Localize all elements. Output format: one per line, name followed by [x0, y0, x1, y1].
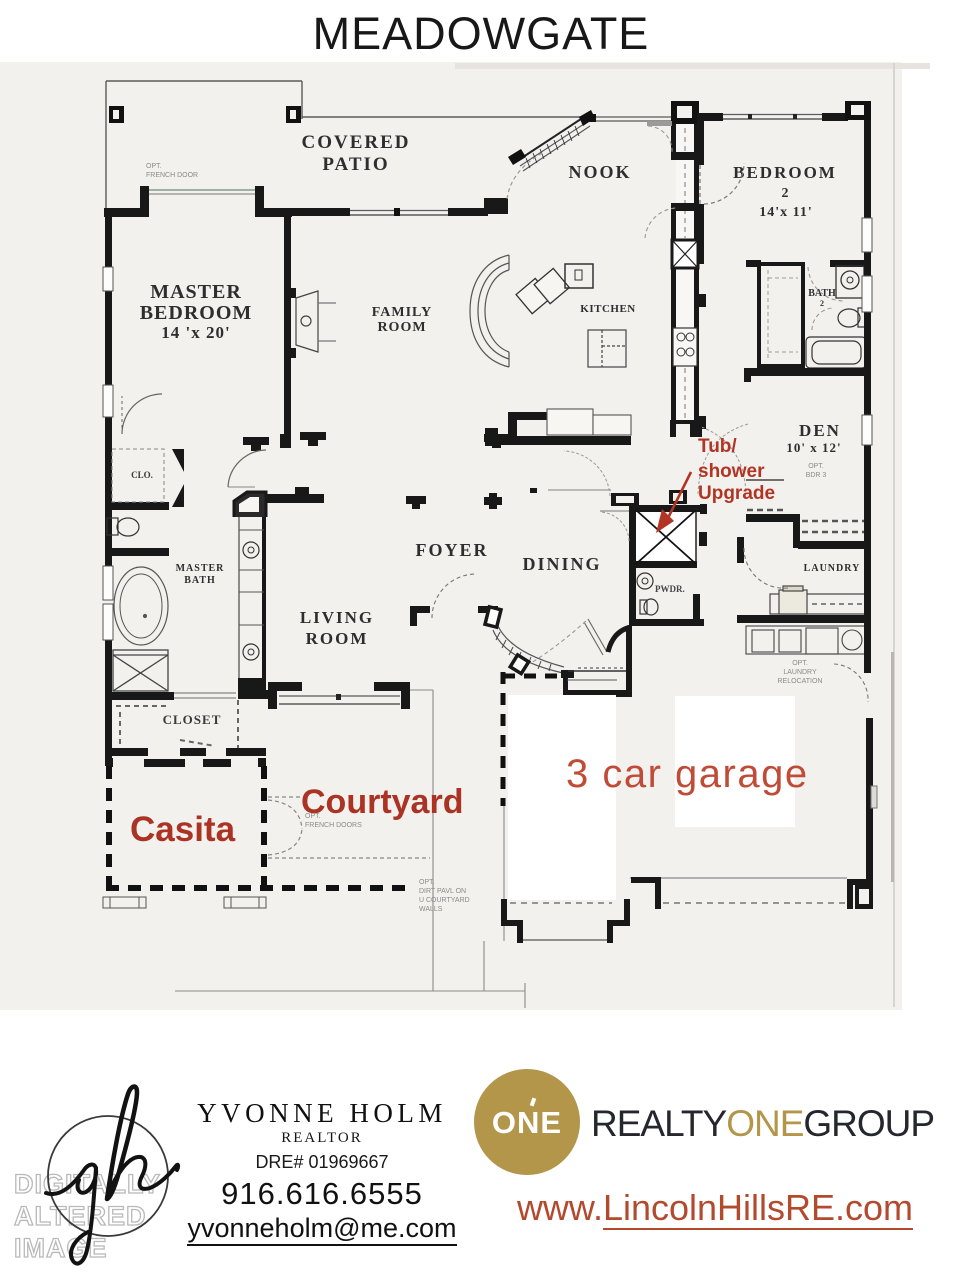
- svg-text:Upgrade: Upgrade: [698, 483, 775, 504]
- svg-text:3 car garage: 3 car garage: [566, 752, 809, 796]
- svg-text:DIRT PAVL ON: DIRT PAVL ON: [419, 888, 466, 895]
- svg-text:PATIO: PATIO: [322, 154, 389, 175]
- svg-text:ROOM: ROOM: [377, 320, 426, 335]
- svg-text:Casita: Casita: [130, 810, 236, 849]
- svg-text:ROOM: ROOM: [306, 629, 369, 648]
- svg-text:OPT.: OPT.: [419, 879, 435, 886]
- svg-text:10' x 12': 10' x 12': [786, 440, 841, 455]
- svg-text:MASTER: MASTER: [176, 563, 225, 574]
- svg-text:BEDROOM: BEDROOM: [733, 163, 837, 182]
- svg-text:shower: shower: [698, 461, 765, 482]
- svg-text:OPT.: OPT.: [146, 163, 162, 170]
- svg-text:14 'x 20': 14 'x 20': [161, 323, 230, 342]
- svg-text:WALLS: WALLS: [419, 906, 443, 913]
- svg-text:LIVING: LIVING: [300, 608, 374, 627]
- svg-text:COVERED: COVERED: [301, 132, 410, 153]
- svg-text:FAMILY: FAMILY: [372, 305, 432, 320]
- svg-text:OPT.: OPT.: [808, 463, 824, 470]
- svg-text:ONE: ONE: [492, 1105, 562, 1140]
- svg-text:BATH: BATH: [184, 575, 216, 586]
- svg-text:DINING: DINING: [522, 554, 601, 574]
- svg-text:FOYER: FOYER: [416, 540, 489, 560]
- svg-text:Courtyard: Courtyard: [301, 783, 463, 821]
- svg-text:14'x 11': 14'x 11': [759, 205, 813, 220]
- svg-text:KITCHEN: KITCHEN: [580, 303, 635, 315]
- svg-text:RELOCATION: RELOCATION: [778, 678, 823, 685]
- svg-text:MASTER: MASTER: [150, 281, 242, 303]
- svg-text:DEN: DEN: [799, 421, 841, 440]
- svg-text:BEDROOM: BEDROOM: [140, 302, 253, 324]
- svg-text:LAUNDRY: LAUNDRY: [783, 669, 817, 676]
- svg-text:LAUNDRY: LAUNDRY: [804, 563, 861, 574]
- svg-text:FRENCH DOOR: FRENCH DOOR: [146, 172, 198, 179]
- svg-text:NOOK: NOOK: [568, 162, 631, 182]
- svg-text:PWDR.: PWDR.: [655, 584, 685, 594]
- svg-text:U COURTYARD: U COURTYARD: [419, 897, 470, 904]
- svg-text:CLOSET: CLOSET: [163, 712, 222, 727]
- svg-text:2: 2: [820, 299, 824, 308]
- svg-text:BDR 3: BDR 3: [806, 472, 827, 479]
- svg-text:OPT.: OPT.: [792, 660, 808, 667]
- svg-text:FRENCH DOORS: FRENCH DOORS: [305, 822, 362, 829]
- svg-text:CLO.: CLO.: [131, 470, 153, 480]
- svg-text:2: 2: [782, 186, 789, 201]
- svg-text:Tub/: Tub/: [698, 436, 737, 457]
